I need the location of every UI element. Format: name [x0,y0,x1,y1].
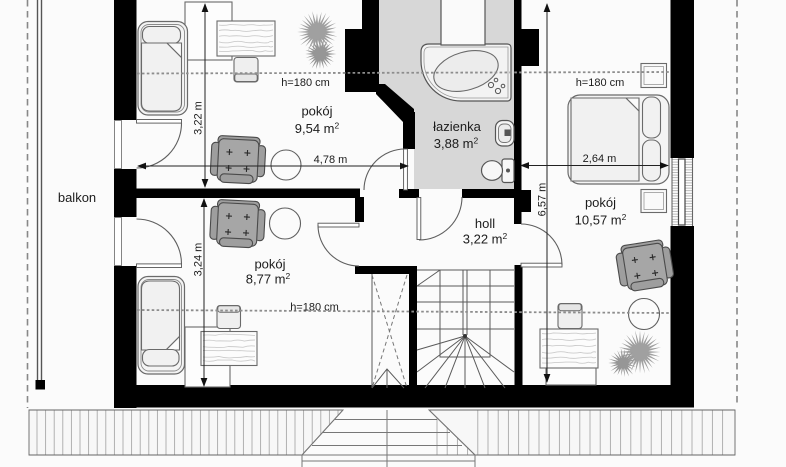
svg-text:9,54 m2: 9,54 m2 [295,121,340,137]
svg-text:2,64 m: 2,64 m [583,153,617,165]
svg-text:3,22 m2: 3,22 m2 [463,231,508,247]
svg-text:h=180 cm: h=180 cm [576,77,625,89]
svg-text:3,88 m2: 3,88 m2 [434,136,479,152]
svg-text:3,24 m: 3,24 m [193,243,205,277]
svg-text:łazienka: łazienka [433,119,481,134]
svg-text:pokój: pokój [254,257,285,272]
svg-text:h=180 cm: h=180 cm [281,77,330,89]
svg-text:holl: holl [475,216,495,231]
svg-text:6,57 m: 6,57 m [537,183,549,217]
svg-text:4,78 m: 4,78 m [314,154,348,166]
svg-text:pokój: pokój [585,195,616,210]
svg-text:8,77 m2: 8,77 m2 [246,271,291,287]
svg-text:10,57 m2: 10,57 m2 [575,212,627,228]
svg-text:3,22 m: 3,22 m [193,101,205,135]
svg-text:h=180 cm: h=180 cm [290,302,339,314]
svg-text:balkon: balkon [58,190,96,205]
svg-text:pokój: pokój [301,104,332,119]
